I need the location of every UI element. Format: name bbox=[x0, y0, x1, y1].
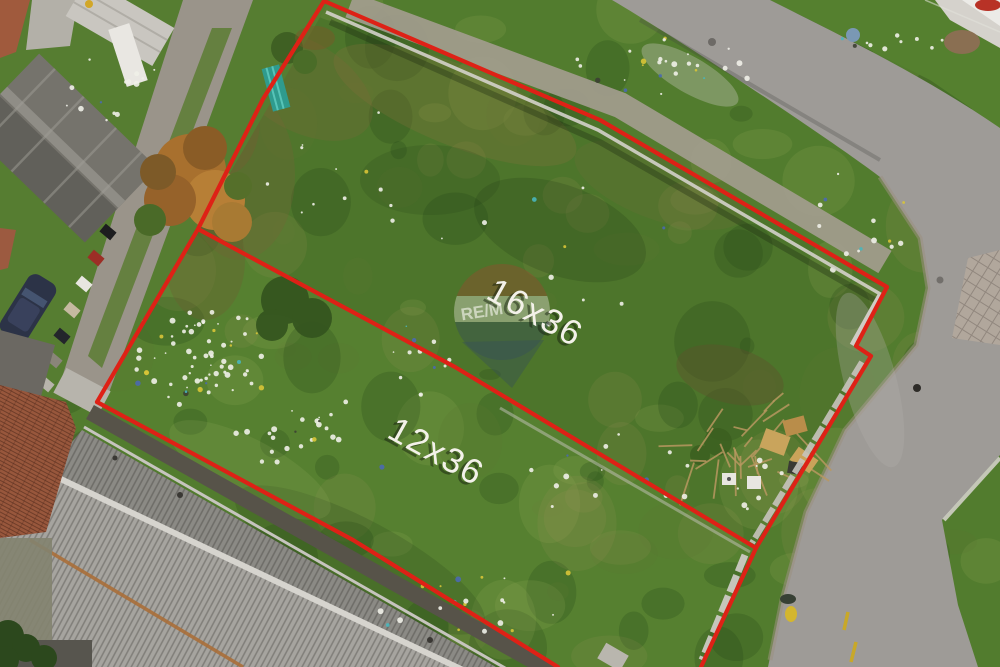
blue-barrel-lid bbox=[846, 28, 860, 42]
sign-board bbox=[747, 476, 761, 489]
yellow-debris bbox=[785, 606, 797, 622]
aerial-lot-photo: RE/M 16x36 16x36 12x36 12x36 bbox=[0, 0, 1000, 667]
bush bbox=[293, 50, 317, 74]
aerial-scene: RE/M 16x36 16x36 12x36 12x36 bbox=[0, 0, 1000, 667]
shed-roof bbox=[26, 0, 78, 50]
yellow-object bbox=[85, 0, 93, 8]
dirt-mound bbox=[944, 30, 980, 54]
